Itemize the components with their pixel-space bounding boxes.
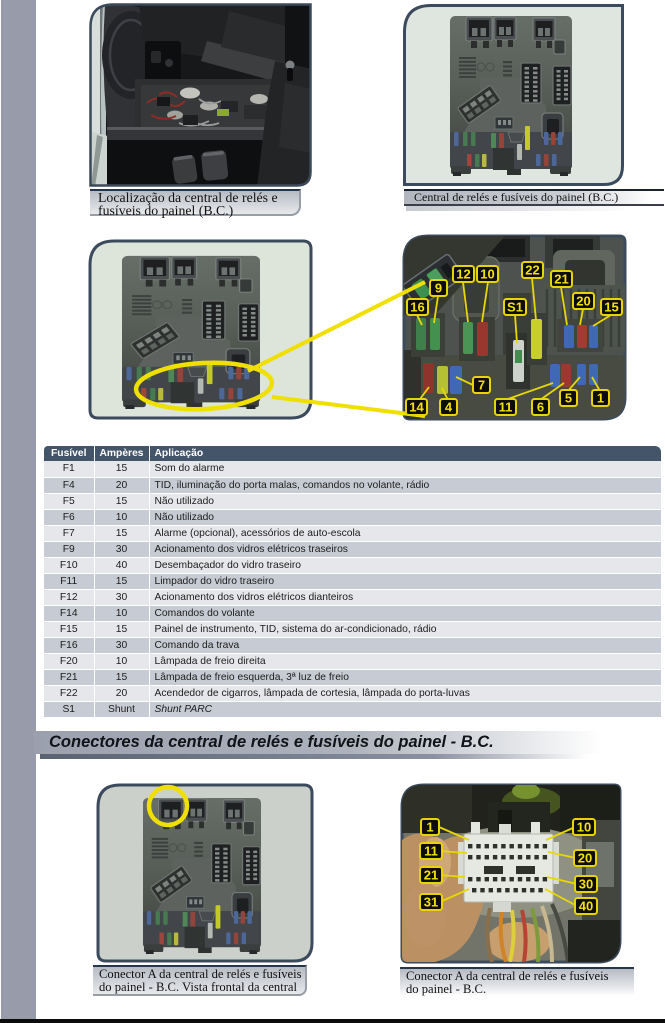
svg-text:7: 7 <box>478 378 485 393</box>
svg-text:11: 11 <box>499 400 513 415</box>
svg-text:12: 12 <box>456 267 470 282</box>
svg-text:16: 16 <box>410 300 424 315</box>
svg-text:5: 5 <box>565 391 572 406</box>
svg-text:10: 10 <box>480 267 494 282</box>
svg-text:40: 40 <box>579 899 593 914</box>
svg-text:22: 22 <box>525 263 539 278</box>
svg-text:1: 1 <box>426 820 433 835</box>
svg-text:31: 31 <box>424 895 438 910</box>
svg-text:4: 4 <box>445 400 453 415</box>
svg-text:14: 14 <box>409 400 424 415</box>
svg-text:20: 20 <box>576 294 590 309</box>
svg-text:30: 30 <box>579 877 593 892</box>
svg-text:10: 10 <box>577 820 591 835</box>
svg-text:11: 11 <box>424 844 438 859</box>
svg-text:20: 20 <box>578 851 592 866</box>
svg-text:9: 9 <box>435 281 442 296</box>
svg-text:1: 1 <box>597 391 604 406</box>
svg-text:S1: S1 <box>507 300 523 315</box>
svg-text:21: 21 <box>554 272 568 287</box>
svg-text:6: 6 <box>537 400 544 415</box>
svg-text:21: 21 <box>424 868 438 883</box>
svg-text:15: 15 <box>604 300 618 315</box>
